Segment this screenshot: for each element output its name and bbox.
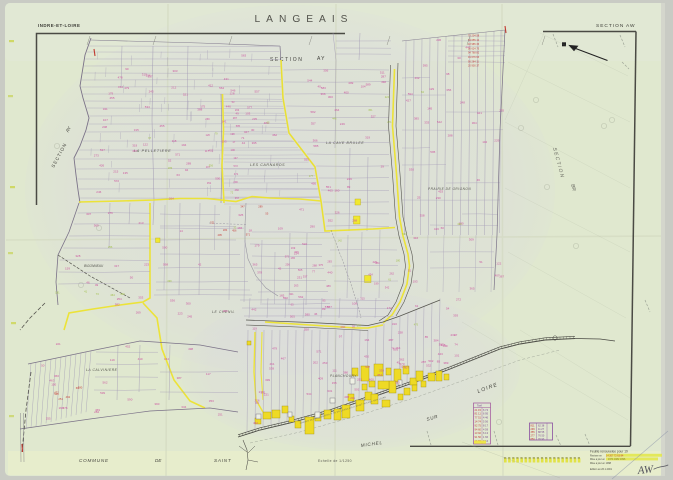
svg-text:181: 181: [55, 291, 60, 295]
svg-text:INDRE-ET-LOIRE: INDRE-ET-LOIRE: [38, 23, 80, 28]
svg-text:288: 288: [312, 264, 317, 268]
svg-text:438: 438: [344, 395, 349, 399]
svg-text:271: 271: [387, 120, 392, 124]
svg-text:122: 122: [496, 261, 501, 265]
svg-text:492: 492: [381, 80, 386, 84]
svg-text:427: 427: [406, 98, 411, 102]
svg-text:358: 358: [420, 214, 425, 218]
svg-text:287: 287: [381, 75, 386, 79]
svg-text:572: 572: [234, 164, 239, 168]
svg-text:30: 30: [457, 56, 461, 60]
svg-text:365: 365: [470, 286, 475, 290]
svg-text:307: 307: [86, 212, 91, 216]
svg-text:263: 263: [235, 108, 240, 112]
svg-text:475: 475: [414, 323, 419, 327]
svg-text:Feuille renouvelee pour 19: Feuille renouvelee pour 19: [590, 450, 628, 454]
svg-text:442: 442: [251, 307, 256, 311]
svg-text:BIGONNEAU: BIGONNEAU: [84, 264, 104, 268]
svg-text:572: 572: [114, 179, 119, 183]
svg-text:AW: AW: [636, 463, 654, 477]
svg-text:221: 221: [56, 342, 61, 346]
svg-text:256: 256: [285, 263, 290, 267]
svg-text:104: 104: [361, 84, 366, 88]
svg-text:426: 426: [99, 164, 104, 168]
svg-text:46: 46: [86, 281, 90, 285]
svg-text:147: 147: [233, 156, 238, 160]
svg-text:526: 526: [54, 392, 59, 396]
svg-text:337: 337: [148, 74, 153, 78]
svg-text:177: 177: [309, 174, 314, 178]
svg-text:212: 212: [171, 86, 176, 90]
svg-text:289: 289: [258, 204, 263, 208]
svg-text:SECTION: SECTION: [270, 57, 303, 63]
svg-text:460: 460: [235, 188, 240, 192]
svg-text:536: 536: [170, 299, 175, 303]
svg-text:215: 215: [113, 169, 118, 173]
svg-text:4 46: 4 46: [483, 416, 489, 420]
svg-text:284: 284: [223, 228, 228, 232]
svg-text:94 768 82: 94 768 82: [468, 52, 480, 55]
svg-text:71: 71: [241, 136, 245, 140]
svg-text:353: 353: [138, 295, 143, 299]
svg-text:51: 51: [479, 260, 483, 264]
svg-text:Echelle de 1/1250: Echelle de 1/1250: [318, 459, 352, 463]
svg-text:269: 269: [136, 310, 141, 314]
svg-text:81 11: 81 11: [475, 412, 482, 416]
svg-text:303: 303: [173, 69, 178, 73]
svg-text:431: 431: [224, 77, 229, 81]
svg-text:317: 317: [114, 264, 119, 268]
svg-text:231: 231: [297, 275, 302, 279]
svg-text:6 95: 6 95: [483, 412, 489, 416]
svg-text:54: 54: [446, 306, 450, 310]
svg-text:393: 393: [453, 314, 458, 318]
svg-text:Edition an 26.1.2001: Edition an 26.1.2001: [590, 468, 613, 471]
svg-text:589: 589: [366, 82, 371, 86]
svg-text:521: 521: [210, 220, 215, 224]
svg-text:597: 597: [365, 365, 370, 369]
svg-text:224: 224: [385, 95, 390, 99]
svg-text:399: 399: [265, 378, 270, 382]
svg-text:169: 169: [291, 246, 296, 250]
svg-text:42: 42: [278, 267, 282, 271]
svg-text:558: 558: [304, 327, 309, 331]
svg-text:18: 18: [249, 228, 253, 232]
svg-text:440: 440: [327, 271, 332, 275]
svg-text:462: 462: [253, 421, 258, 425]
svg-text:8 17: 8 17: [483, 423, 489, 427]
svg-text:226: 226: [255, 398, 260, 402]
svg-text:276: 276: [499, 109, 504, 113]
svg-text:184: 184: [237, 226, 242, 230]
svg-text:537: 537: [100, 148, 105, 152]
svg-text:73: 73: [96, 292, 99, 296]
svg-text:69 655 12: 69 655 12: [468, 39, 480, 42]
svg-text:Mise a jour en 1998: Mise a jour en 1998: [590, 462, 612, 465]
svg-text:356: 356: [323, 69, 328, 73]
svg-text:94 60: 94 60: [475, 427, 482, 431]
svg-text:235: 235: [252, 117, 257, 121]
svg-text:577: 577: [247, 105, 252, 109]
svg-text:107: 107: [103, 118, 108, 122]
svg-text:495: 495: [218, 233, 223, 237]
svg-text:202: 202: [313, 360, 318, 364]
svg-text:342: 342: [385, 286, 390, 290]
svg-text:366: 366: [54, 374, 59, 378]
svg-text:421: 421: [477, 111, 482, 115]
svg-text:SECTION: SECTION: [596, 23, 624, 29]
svg-text:598: 598: [163, 262, 168, 266]
svg-text:582: 582: [115, 303, 120, 307]
svg-text:194: 194: [181, 143, 186, 147]
svg-text:499: 499: [167, 279, 172, 283]
svg-text:479: 479: [272, 347, 277, 351]
svg-text:539: 539: [100, 391, 105, 395]
svg-text:231: 231: [451, 333, 456, 337]
svg-text:409: 409: [318, 376, 323, 380]
svg-text:21 15: 21 15: [475, 408, 482, 412]
svg-text:50: 50: [130, 276, 134, 280]
svg-text:530: 530: [409, 167, 414, 171]
svg-text:499: 499: [348, 81, 353, 85]
svg-text:150: 150: [51, 382, 56, 386]
svg-text:229: 229: [347, 177, 352, 181]
svg-text:223: 223: [144, 263, 149, 267]
svg-text:316: 316: [413, 236, 418, 240]
svg-text:238: 238: [398, 330, 403, 334]
svg-text:334: 334: [181, 405, 186, 409]
svg-text:300: 300: [186, 302, 191, 306]
svg-text:97: 97: [339, 334, 343, 338]
svg-text:PRAIRIE DE GRIGNON: PRAIRIE DE GRIGNON: [428, 187, 471, 191]
svg-text:20: 20: [352, 325, 356, 329]
svg-text:LA CAVE BRULEE: LA CAVE BRULEE: [326, 141, 364, 145]
svg-text:502: 502: [428, 359, 433, 363]
svg-text:479: 479: [124, 86, 129, 90]
svg-text:AY: AY: [317, 56, 326, 62]
svg-text:LA CALVINIERE: LA CALVINIERE: [86, 368, 118, 372]
svg-text:LES CARNARDS: LES CARNARDS: [250, 163, 285, 167]
svg-text:326: 326: [335, 210, 340, 214]
svg-text:DE: DE: [155, 458, 162, 463]
svg-text:109: 109: [278, 227, 283, 231]
svg-text:347: 347: [240, 205, 245, 209]
svg-text:30: 30: [251, 128, 255, 132]
svg-text:492: 492: [66, 395, 71, 399]
svg-text:91 50: 91 50: [475, 435, 482, 439]
svg-text:74: 74: [454, 343, 458, 347]
svg-text:490: 490: [340, 325, 345, 329]
svg-text:288: 288: [448, 134, 453, 138]
svg-text:199: 199: [374, 281, 379, 285]
svg-text:4 59: 4 59: [483, 427, 489, 431]
svg-text:90: 90: [125, 67, 129, 71]
svg-text:164: 164: [59, 406, 64, 410]
svg-text:471: 471: [234, 172, 239, 176]
svg-text:453: 453: [438, 189, 443, 193]
svg-text:366: 366: [321, 92, 326, 96]
svg-text:330: 330: [120, 292, 125, 296]
svg-text:164: 164: [364, 338, 369, 342]
svg-text:416: 416: [434, 227, 439, 231]
svg-text:489: 489: [326, 284, 331, 288]
svg-text:Revisee en: Revisee en: [590, 454, 603, 457]
svg-text:268: 268: [352, 218, 357, 222]
svg-text:135: 135: [123, 171, 128, 175]
svg-text:434: 434: [368, 272, 373, 276]
svg-text:521: 521: [183, 93, 188, 97]
svg-text:263: 263: [294, 284, 299, 288]
svg-text:117: 117: [206, 372, 211, 376]
svg-text:323: 323: [395, 381, 400, 385]
svg-text:328: 328: [75, 254, 80, 258]
svg-text:542: 542: [437, 120, 442, 124]
svg-text:160: 160: [334, 188, 339, 192]
svg-text:410: 410: [138, 357, 143, 361]
svg-text:272: 272: [456, 297, 461, 301]
svg-text:119: 119: [252, 327, 257, 331]
svg-text:251: 251: [218, 413, 223, 417]
svg-text:283: 283: [327, 259, 332, 263]
svg-text:85: 85: [323, 299, 326, 303]
svg-text:501: 501: [354, 388, 359, 392]
svg-text:487: 487: [388, 338, 393, 342]
svg-text:230: 230: [436, 196, 441, 200]
svg-text:41: 41: [84, 290, 87, 294]
svg-text:357: 357: [311, 122, 316, 126]
svg-text:172: 172: [387, 306, 392, 310]
svg-text:595: 595: [430, 150, 435, 154]
svg-text:300: 300: [328, 95, 333, 99]
svg-text:20 900 37: 20 900 37: [468, 65, 480, 68]
svg-text:193: 193: [413, 279, 418, 283]
svg-text:315: 315: [134, 128, 139, 132]
svg-text:571: 571: [246, 232, 251, 236]
svg-text:590: 590: [127, 397, 132, 401]
svg-text:309: 309: [469, 238, 474, 242]
svg-text:89: 89: [322, 307, 326, 311]
svg-text:AW: AW: [626, 23, 636, 29]
svg-text:585: 585: [313, 144, 318, 148]
svg-text:319: 319: [132, 144, 137, 148]
svg-text:378: 378: [257, 270, 262, 274]
svg-text:571: 571: [175, 153, 180, 157]
svg-text:446: 446: [226, 105, 231, 109]
svg-text:390: 390: [154, 402, 159, 406]
svg-text:321: 321: [289, 292, 294, 296]
svg-text:89: 89: [347, 185, 351, 189]
svg-text:400: 400: [369, 378, 374, 382]
svg-text:478: 478: [118, 76, 123, 80]
svg-text:495: 495: [311, 181, 316, 185]
svg-text:400: 400: [344, 91, 349, 95]
svg-text:500: 500: [215, 176, 220, 180]
svg-text:389: 389: [443, 361, 448, 365]
svg-text:562: 562: [103, 380, 108, 384]
svg-text:430: 430: [364, 354, 369, 358]
svg-text:155: 155: [332, 381, 337, 385]
svg-text:585: 585: [236, 124, 241, 128]
svg-text:474: 474: [118, 85, 123, 89]
svg-text:432: 432: [415, 76, 420, 80]
svg-text:252: 252: [357, 377, 362, 381]
svg-text:357: 357: [235, 196, 240, 200]
svg-text:65: 65: [291, 303, 294, 307]
svg-text:13 92: 13 92: [475, 431, 482, 435]
svg-text:175: 175: [200, 105, 205, 109]
svg-text:126: 126: [206, 133, 211, 137]
svg-text:551: 551: [326, 185, 331, 189]
svg-text:29: 29: [381, 165, 385, 169]
svg-text:367: 367: [499, 275, 504, 279]
svg-text:289: 289: [186, 162, 191, 166]
svg-text:101: 101: [454, 354, 459, 358]
svg-text:214: 214: [259, 390, 264, 394]
svg-text:397: 397: [439, 343, 444, 347]
svg-text:595: 595: [423, 64, 428, 68]
svg-text:111: 111: [332, 368, 337, 372]
svg-text:PLANCHOURY: PLANCHOURY: [330, 374, 357, 378]
svg-text:287: 287: [233, 116, 238, 120]
svg-text:362: 362: [399, 358, 404, 362]
svg-text:256: 256: [108, 245, 113, 249]
svg-text:594: 594: [408, 92, 413, 96]
svg-text:582: 582: [311, 110, 316, 114]
svg-text:77: 77: [312, 270, 315, 274]
svg-text:141: 141: [222, 119, 227, 123]
svg-text:50: 50: [41, 364, 45, 368]
svg-text:164: 164: [395, 346, 400, 350]
svg-text:25: 25: [417, 195, 421, 199]
svg-text:6 74: 6 74: [483, 408, 489, 412]
svg-text:380: 380: [343, 370, 348, 374]
svg-text:387: 387: [177, 376, 182, 380]
svg-text:380: 380: [78, 385, 83, 389]
svg-text:593: 593: [222, 140, 227, 144]
svg-text:243: 243: [149, 89, 154, 93]
svg-text:555: 555: [304, 157, 309, 161]
svg-text:255: 255: [46, 417, 51, 421]
svg-text:429: 429: [373, 260, 378, 264]
svg-text:580: 580: [305, 313, 310, 317]
svg-text:454: 454: [377, 373, 382, 377]
svg-text:365: 365: [252, 262, 257, 266]
svg-text:251: 251: [58, 397, 63, 401]
svg-text:556: 556: [209, 164, 214, 168]
svg-text:245: 245: [187, 314, 192, 318]
svg-text:76 93: 76 93: [538, 438, 545, 441]
svg-text:331: 331: [327, 389, 332, 393]
svg-text:254: 254: [117, 297, 122, 301]
svg-text:351: 351: [368, 108, 373, 112]
svg-text:208: 208: [102, 125, 107, 129]
svg-text:562: 562: [298, 295, 303, 299]
svg-text:539: 539: [269, 367, 274, 371]
svg-text:455: 455: [110, 96, 115, 100]
svg-text:569: 569: [94, 224, 99, 228]
svg-text:457: 457: [132, 149, 137, 153]
svg-text:452: 452: [125, 345, 130, 349]
svg-text:297: 297: [357, 323, 362, 327]
svg-text:464: 464: [334, 108, 339, 112]
svg-text:395: 395: [252, 141, 257, 145]
svg-text:375: 375: [319, 263, 324, 267]
svg-text:236: 236: [436, 38, 441, 42]
svg-text:273: 273: [94, 154, 99, 158]
svg-text:142: 142: [338, 239, 343, 243]
svg-text:SAINT: SAINT: [214, 458, 232, 463]
svg-text:269: 269: [205, 117, 210, 121]
svg-text:94: 94: [185, 168, 189, 172]
svg-text:14: 14: [180, 229, 184, 233]
svg-text:61: 61: [415, 304, 419, 308]
svg-text:46: 46: [314, 312, 318, 316]
svg-text:850: 850: [531, 438, 536, 441]
svg-text:534: 534: [307, 392, 312, 396]
svg-text:1 66: 1 66: [483, 435, 489, 439]
svg-text:76: 76: [391, 347, 395, 351]
svg-text:118: 118: [172, 139, 177, 143]
svg-text:180: 180: [396, 259, 401, 263]
svg-text:360: 360: [223, 309, 228, 313]
svg-text:85: 85: [437, 359, 441, 363]
svg-text:159: 159: [65, 266, 70, 270]
svg-text:537: 537: [303, 274, 308, 278]
svg-text:427: 427: [244, 130, 249, 134]
svg-text:461: 461: [270, 362, 275, 366]
svg-text:100: 100: [231, 148, 236, 152]
svg-text:49: 49: [95, 283, 99, 287]
svg-text:557: 557: [255, 90, 260, 94]
svg-text:563: 563: [241, 54, 246, 58]
svg-text:571: 571: [316, 350, 321, 354]
svg-text:229: 229: [494, 139, 499, 143]
svg-text:246: 246: [96, 190, 101, 194]
svg-text:264: 264: [169, 197, 174, 201]
svg-text:249: 249: [340, 122, 345, 126]
svg-text:14 207 72 63 84: 14 207 72 63 84: [606, 454, 624, 457]
svg-text:91 676 63: 91 676 63: [468, 56, 480, 59]
svg-text:Mise a jour en: Mise a jour en: [590, 458, 606, 461]
svg-text:42: 42: [198, 263, 202, 267]
svg-text:42: 42: [242, 141, 246, 145]
svg-text:353: 353: [209, 399, 214, 403]
svg-text:522: 522: [302, 242, 307, 246]
svg-text:213: 213: [139, 221, 144, 225]
svg-text:Tarif: Tarif: [477, 404, 482, 408]
svg-text:6 13: 6 13: [483, 431, 489, 435]
svg-text:333: 333: [424, 120, 429, 124]
svg-text:329: 329: [294, 250, 299, 254]
svg-text:145: 145: [427, 107, 432, 111]
svg-text:402: 402: [208, 148, 213, 152]
svg-text:77 51: 77 51: [475, 416, 482, 420]
svg-text:200: 200: [233, 180, 238, 184]
svg-text:108: 108: [352, 302, 357, 306]
svg-text:564: 564: [219, 86, 224, 90]
svg-text:521: 521: [400, 364, 405, 368]
svg-text:446: 446: [332, 117, 337, 121]
svg-text:18 985 33: 18 985 33: [468, 43, 480, 46]
svg-text:291: 291: [350, 396, 355, 400]
svg-text:575: 575: [285, 254, 290, 258]
svg-text:129: 129: [429, 87, 434, 91]
svg-text:51: 51: [408, 269, 412, 273]
svg-text:198: 198: [230, 132, 235, 136]
svg-text:56 284 11: 56 284 11: [468, 60, 480, 63]
svg-text:319: 319: [365, 136, 370, 140]
svg-text:165: 165: [291, 256, 296, 260]
